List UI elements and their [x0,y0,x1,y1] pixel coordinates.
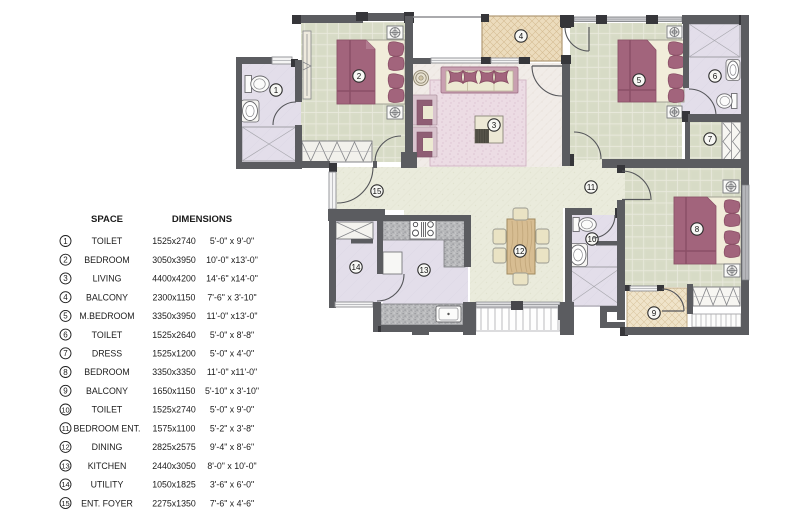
svg-text:14'-6" x14'-0": 14'-6" x14'-0" [206,274,258,284]
svg-text:7'-6" x 3'-10": 7'-6" x 3'-10" [207,292,256,302]
svg-text:15: 15 [373,187,382,196]
svg-text:1525x2740: 1525x2740 [152,405,196,415]
svg-text:1525x2640: 1525x2640 [152,330,196,340]
svg-text:10: 10 [588,235,597,244]
svg-text:3350x3350: 3350x3350 [152,367,196,377]
svg-text:12: 12 [61,443,69,452]
svg-text:7: 7 [708,135,713,144]
svg-text:3: 3 [63,274,68,283]
svg-text:15: 15 [61,499,69,508]
svg-text:2275x1350: 2275x1350 [152,498,196,508]
svg-text:5: 5 [63,312,68,321]
svg-text:14: 14 [61,480,69,489]
svg-text:BALCONY: BALCONY [86,386,128,396]
svg-text:5'-2" x 3'-8": 5'-2" x 3'-8" [210,423,254,433]
svg-text:14: 14 [352,263,361,272]
svg-text:1: 1 [274,86,279,95]
svg-text:3: 3 [492,121,497,130]
svg-text:DINING: DINING [92,442,123,452]
svg-text:DRESS: DRESS [92,349,122,359]
svg-text:DIMENSIONS: DIMENSIONS [172,214,232,225]
svg-text:5'-0" x 4'-0": 5'-0" x 4'-0" [210,349,254,359]
svg-text:4: 4 [63,293,68,302]
svg-text:2: 2 [63,256,68,265]
svg-text:10'-0" x13'-0": 10'-0" x13'-0" [206,255,258,265]
svg-text:3'-6" x 6'-0": 3'-6" x 6'-0" [210,480,254,490]
svg-text:2: 2 [357,72,362,81]
svg-text:3050x3950: 3050x3950 [152,255,196,265]
svg-text:2300x1150: 2300x1150 [153,292,196,302]
svg-text:9'-4" x 8'-6": 9'-4" x 8'-6" [210,442,254,452]
svg-text:8: 8 [695,225,700,234]
svg-text:6: 6 [63,330,68,339]
svg-text:13: 13 [420,266,429,275]
svg-text:4: 4 [519,32,524,41]
svg-text:BEDROOM ENT.: BEDROOM ENT. [74,423,141,433]
svg-text:1525x1200: 1525x1200 [152,349,196,359]
svg-text:11'-0" x11'-0": 11'-0" x11'-0" [207,367,257,377]
svg-text:12: 12 [516,247,525,256]
svg-text:1: 1 [63,237,68,246]
svg-text:BEDROOM: BEDROOM [84,255,129,265]
svg-text:KITCHEN: KITCHEN [88,461,127,471]
svg-text:SPACE: SPACE [91,214,123,225]
svg-text:TOILET: TOILET [92,236,123,246]
svg-text:1525x2740: 1525x2740 [152,236,196,246]
svg-text:5: 5 [637,76,642,85]
svg-text:8'-0" x 10'-0": 8'-0" x 10'-0" [207,461,256,471]
svg-text:BALCONY: BALCONY [86,292,128,302]
svg-text:TOILET: TOILET [92,330,123,340]
svg-text:1650x1150: 1650x1150 [153,386,196,396]
svg-text:9: 9 [652,309,657,318]
svg-text:M.BEDROOM: M.BEDROOM [79,311,134,321]
svg-text:4400x4200: 4400x4200 [152,274,196,284]
svg-text:BEDROOM: BEDROOM [84,367,129,377]
svg-text:2825x2575: 2825x2575 [152,442,196,452]
svg-text:5'-0" x 8'-8": 5'-0" x 8'-8" [210,330,254,340]
svg-text:5'-0" x 9'-0": 5'-0" x 9'-0" [210,405,254,415]
svg-text:2440x3050: 2440x3050 [152,461,196,471]
svg-text:7'-6" x 4'-6": 7'-6" x 4'-6" [210,498,254,508]
svg-text:1050x1825: 1050x1825 [152,480,196,490]
svg-text:10: 10 [61,405,69,414]
svg-text:UTILITY: UTILITY [91,480,124,490]
svg-text:TOILET: TOILET [92,405,123,415]
svg-text:3350x3950: 3350x3950 [152,311,196,321]
svg-text:13: 13 [61,461,69,470]
svg-text:ENT. FOYER: ENT. FOYER [81,498,133,508]
svg-text:7: 7 [63,349,68,358]
svg-text:LIVING: LIVING [93,274,122,284]
svg-text:5'-0" x 9'-0": 5'-0" x 9'-0" [210,236,254,246]
svg-text:11: 11 [587,183,596,192]
svg-text:11: 11 [62,424,70,433]
svg-text:5'-10" x 3'-10": 5'-10" x 3'-10" [205,386,259,396]
svg-text:6: 6 [713,72,718,81]
svg-text:8: 8 [63,368,68,377]
svg-text:11'-0" x13'-0": 11'-0" x13'-0" [206,311,257,321]
svg-text:1575x1100: 1575x1100 [153,423,196,433]
svg-text:9: 9 [63,387,68,396]
